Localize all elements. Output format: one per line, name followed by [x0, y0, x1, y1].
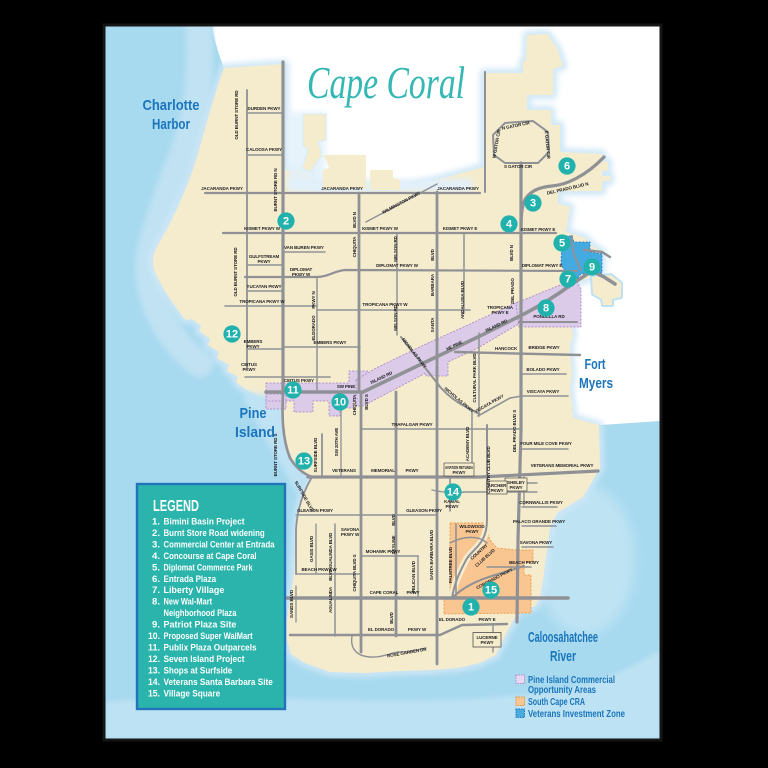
svg-text:BLVD: BLVD	[389, 611, 394, 623]
svg-text:8.: 8.	[152, 597, 160, 608]
svg-text:OLD BURNT STORE RD: OLD BURNT STORE RD	[233, 247, 238, 297]
svg-text:SW 20TH AVE: SW 20TH AVE	[334, 428, 339, 457]
svg-text:KISMET PKWY W: KISMET PKWY W	[244, 226, 281, 231]
svg-text:SANTA BARBARA BLVD: SANTA BARBARA BLVD	[429, 529, 434, 580]
svg-text:9: 9	[589, 262, 595, 274]
svg-text:AGUALINDA: AGUALINDA	[328, 586, 333, 613]
svg-text:13: 13	[298, 456, 310, 468]
svg-text:VETERANS: VETERANS	[332, 468, 356, 473]
svg-text:CEITUS PKWY: CEITUS PKWY	[284, 378, 314, 383]
svg-text:3.: 3.	[152, 539, 160, 550]
svg-text:S GATOR CIR: S GATOR CIR	[504, 164, 533, 169]
svg-text:PKWY: PKWY	[480, 640, 493, 645]
svg-text:7: 7	[565, 274, 571, 286]
svg-text:JACARANDA PKWY: JACARANDA PKWY	[201, 186, 243, 191]
svg-text:PKWY: PKWY	[246, 344, 259, 349]
svg-text:CULTURAL PARK BLVD: CULTURAL PARK BLVD	[472, 353, 477, 403]
svg-text:PKWY: PKWY	[257, 259, 270, 264]
svg-text:PKWY W: PKWY W	[292, 272, 311, 277]
svg-text:12.: 12.	[148, 654, 160, 665]
svg-text:JACARANDA PKWY: JACARANDA PKWY	[437, 186, 479, 191]
svg-text:14: 14	[447, 487, 460, 499]
svg-text:FOUR MILE COVE PKWY: FOUR MILE COVE PKWY	[520, 441, 572, 446]
svg-text:Bimini Basin Project: Bimini Basin Project	[164, 517, 246, 528]
svg-text:VETERANS MEMORIAL PKWY: VETERANS MEMORIAL PKWY	[531, 463, 594, 468]
svg-text:Diplomat Commerce Park: Diplomat Commerce Park	[164, 562, 254, 573]
svg-text:OLD BURNT STORE RD: OLD BURNT STORE RD	[234, 90, 239, 140]
svg-text:PELICAN BLVD: PELICAN BLVD	[411, 560, 416, 593]
svg-text:Shops at Surfside: Shops at Surfside	[164, 665, 233, 676]
svg-text:DEL PRADO: DEL PRADO	[510, 278, 515, 304]
svg-text:PKWY: PKWY	[490, 488, 503, 493]
svg-text:4.: 4.	[152, 551, 160, 562]
svg-text:BLVD: BLVD	[391, 513, 396, 525]
svg-text:Burnt Store Road widening: Burnt Store Road widening	[164, 528, 265, 539]
svg-text:Entrada Plaza: Entrada Plaza	[164, 574, 217, 585]
svg-text:5: 5	[559, 238, 565, 250]
svg-text:BLVD N: BLVD N	[509, 245, 514, 261]
svg-text:PKWY: PKWY	[405, 468, 418, 473]
svg-text:8: 8	[543, 303, 549, 315]
svg-text:ELDORADO: ELDORADO	[311, 315, 316, 341]
svg-text:South Cape CRA: South Cape CRA	[528, 697, 585, 708]
svg-text:NELSON RD: NELSON RD	[393, 304, 398, 330]
svg-text:DEL PRADO BLVD S: DEL PRADO BLVD S	[512, 410, 517, 452]
svg-text:DURDEN PKWY: DURDEN PKWY	[248, 106, 281, 111]
svg-text:1.: 1.	[152, 517, 160, 528]
svg-text:DIPLOMAT PKWY W: DIPLOMAT PKWY W	[376, 263, 419, 268]
svg-text:SW PINE: SW PINE	[337, 384, 355, 389]
svg-text:Village Square: Village Square	[164, 688, 221, 699]
svg-text:SAVONA PKWY: SAVONA PKWY	[520, 540, 553, 545]
svg-text:AGUALINDA BLVD: AGUALINDA BLVD	[328, 532, 333, 571]
svg-text:2.: 2.	[152, 528, 160, 539]
svg-text:BRIDGE PKWY: BRIDGE PKWY	[528, 345, 559, 350]
svg-text:BLVD S: BLVD S	[364, 394, 369, 410]
svg-text:Liberty Village: Liberty Village	[164, 585, 225, 596]
svg-text:OASIS BLVD: OASIS BLVD	[309, 535, 314, 562]
svg-text:Charlotte: Charlotte	[143, 97, 200, 114]
svg-text:CHIQUITA: CHIQUITA	[352, 394, 357, 415]
svg-text:LEGEND: LEGEND	[153, 498, 199, 515]
svg-text:River: River	[550, 648, 576, 665]
svg-text:PKWY: PKWY	[509, 485, 522, 490]
svg-text:EL DORADO: EL DORADO	[439, 617, 466, 622]
svg-text:Veterans Investment Zone: Veterans Investment Zone	[528, 709, 625, 720]
svg-text:14.: 14.	[148, 677, 160, 688]
svg-text:DIPLOMAT PKWY E: DIPLOMAT PKWY E	[522, 263, 563, 268]
svg-text:Commercial Center at Entrada: Commercial Center at Entrada	[164, 539, 276, 550]
svg-text:Veterans Santa Barbara Site: Veterans Santa Barbara Site	[164, 677, 273, 688]
svg-text:PKWY: PKWY	[445, 504, 458, 509]
svg-text:2: 2	[283, 216, 289, 228]
svg-text:NELSON RD: NELSON RD	[393, 235, 398, 261]
svg-text:PKWY W: PKWY W	[341, 532, 360, 537]
svg-text:KISMET PKWY E: KISMET PKWY E	[521, 227, 556, 232]
svg-text:15.: 15.	[148, 688, 160, 699]
svg-text:KISMET PKWY W: KISMET PKWY W	[362, 226, 399, 231]
svg-text:Patriot Plaza Site: Patriot Plaza Site	[164, 620, 237, 631]
svg-text:Myers: Myers	[579, 375, 613, 392]
svg-text:ANDALUSIA BLVD: ANDALUSIA BLVD	[460, 280, 465, 319]
svg-text:BURNT STORE RD N: BURNT STORE RD N	[273, 168, 278, 211]
svg-text:13.: 13.	[148, 665, 160, 676]
svg-text:TROPICANA PKWY W: TROPICANA PKWY W	[239, 299, 285, 304]
svg-text:VAN BUREN PKWY: VAN BUREN PKWY	[284, 245, 324, 250]
svg-text:10.: 10.	[148, 631, 160, 642]
svg-text:BEACH PKWY: BEACH PKWY	[509, 560, 539, 565]
svg-text:BOLADO PKWY: BOLADO PKWY	[526, 367, 559, 372]
svg-text:PALMTREE BLVD: PALMTREE BLVD	[448, 546, 453, 583]
svg-text:Fort: Fort	[585, 356, 606, 373]
svg-text:Harbor: Harbor	[152, 116, 190, 133]
svg-text:KISMET PKWY E: KISMET PKWY E	[443, 226, 478, 231]
svg-text:Seven Island Project: Seven Island Project	[164, 654, 246, 665]
svg-text:GLEASON PKWY: GLEASON PKWY	[406, 508, 442, 513]
svg-text:TROPICANA PKWY W: TROPICANA PKWY W	[362, 302, 408, 307]
svg-text:6.: 6.	[152, 574, 160, 585]
svg-text:6: 6	[564, 161, 570, 173]
svg-text:CORNWALLIS PKWY: CORNWALLIS PKWY	[519, 500, 563, 505]
svg-text:Island: Island	[235, 424, 275, 441]
svg-text:12: 12	[226, 329, 238, 341]
svg-text:4: 4	[506, 219, 513, 231]
svg-text:Proposed Super WalMart: Proposed Super WalMart	[164, 631, 254, 642]
svg-text:Publix Plaza Outparcels: Publix Plaza Outparcels	[164, 643, 257, 654]
svg-text:SANTA: SANTA	[430, 317, 435, 333]
svg-text:PKWY W: PKWY W	[408, 627, 427, 632]
svg-text:New Wal-Mart: New Wal-Mart	[164, 597, 213, 608]
svg-text:PKWY: PKWY	[452, 470, 465, 475]
svg-text:HANCOCK: HANCOCK	[495, 346, 518, 351]
svg-text:Neighborhood Plaza: Neighborhood Plaza	[164, 608, 237, 619]
svg-text:YUCATAN PKWY: YUCATAN PKWY	[247, 284, 282, 289]
svg-text:BARBARA: BARBARA	[430, 273, 435, 296]
svg-text:JACARANDA PKWY: JACARANDA PKWY	[321, 186, 363, 191]
svg-text:CHIQUITA: CHIQUITA	[352, 236, 357, 257]
svg-text:Caloosahatchee: Caloosahatchee	[528, 629, 598, 646]
svg-text:SKYLINE: SKYLINE	[391, 536, 396, 555]
svg-text:PKWY E: PKWY E	[491, 310, 508, 315]
svg-text:EL DORADO: EL DORADO	[368, 627, 395, 632]
svg-text:CHIQUITA BLVD S: CHIQUITA BLVD S	[352, 554, 357, 591]
svg-text:EMBERS PKWY: EMBERS PKWY	[314, 340, 347, 345]
svg-text:ACADEMY BLVD: ACADEMY BLVD	[465, 426, 470, 461]
svg-text:PKWY: PKWY	[465, 529, 478, 534]
svg-text:PKWY: PKWY	[242, 367, 255, 372]
svg-text:11.: 11.	[148, 643, 160, 654]
svg-text:Opportunity Areas: Opportunity Areas	[528, 685, 596, 696]
svg-text:3: 3	[530, 198, 536, 210]
svg-text:11: 11	[287, 385, 299, 397]
svg-text:CALOOSA PKWY: CALOOSA PKWY	[246, 147, 282, 152]
svg-text:COUNTRY CLUB BLVD: COUNTRY CLUB BLVD	[486, 446, 491, 494]
svg-text:SURFSIDE BLVD: SURFSIDE BLVD	[313, 437, 318, 472]
svg-text:VISCAYA PKWY: VISCAYA PKWY	[527, 389, 560, 394]
svg-text:PKWY N: PKWY N	[311, 291, 316, 308]
svg-text:5.: 5.	[152, 562, 160, 573]
svg-text:7.: 7.	[152, 585, 160, 596]
svg-text:10: 10	[334, 397, 346, 409]
svg-text:BLVD: BLVD	[430, 248, 435, 260]
svg-text:TRAFALGAR PKWY: TRAFALGAR PKWY	[391, 422, 432, 427]
svg-text:Concourse at Cape Coral: Concourse at Cape Coral	[164, 551, 257, 562]
svg-text:BLVD: BLVD	[328, 568, 333, 580]
svg-text:CAPE CORAL: CAPE CORAL	[370, 590, 399, 595]
svg-text:PKWY E: PKWY E	[478, 617, 495, 622]
svg-text:BLVD N: BLVD N	[352, 212, 357, 228]
svg-text:PALACO GRANDE PKWY: PALACO GRANDE PKWY	[513, 519, 565, 524]
svg-text:Pine: Pine	[240, 405, 267, 422]
svg-text:MEMORIAL: MEMORIAL	[371, 468, 395, 473]
svg-text:1: 1	[468, 602, 474, 614]
svg-text:SANDS BLVD: SANDS BLVD	[289, 589, 294, 618]
svg-text:9.: 9.	[152, 620, 160, 631]
svg-text:Cape Coral: Cape Coral	[307, 58, 465, 108]
svg-text:15: 15	[485, 585, 497, 597]
